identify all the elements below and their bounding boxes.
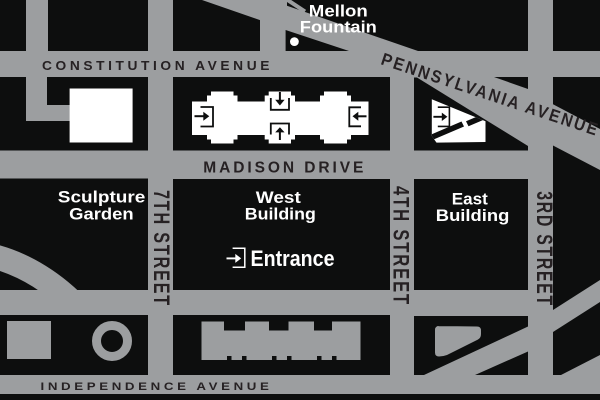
svg-text:Fountain: Fountain (300, 18, 377, 37)
svg-text:INDEPENDENCE AVENUE: INDEPENDENCE AVENUE (41, 381, 273, 393)
svg-text:7TH STREET: 7TH STREET (149, 190, 174, 307)
svg-text:Sculpture: Sculpture (58, 189, 146, 207)
svg-text:4TH STREET: 4TH STREET (389, 186, 414, 306)
svg-text:Garden: Garden (69, 206, 134, 224)
svg-text:Entrance: Entrance (251, 246, 335, 271)
svg-text:MADISON DRIVE: MADISON DRIVE (203, 160, 366, 177)
svg-text:3RD STREET: 3RD STREET (532, 191, 557, 307)
svg-text:Building: Building (436, 207, 510, 225)
svg-text:CONSTITUTION AVENUE: CONSTITUTION AVENUE (42, 58, 273, 73)
svg-text:East: East (452, 191, 489, 209)
svg-text:Building: Building (245, 205, 316, 223)
